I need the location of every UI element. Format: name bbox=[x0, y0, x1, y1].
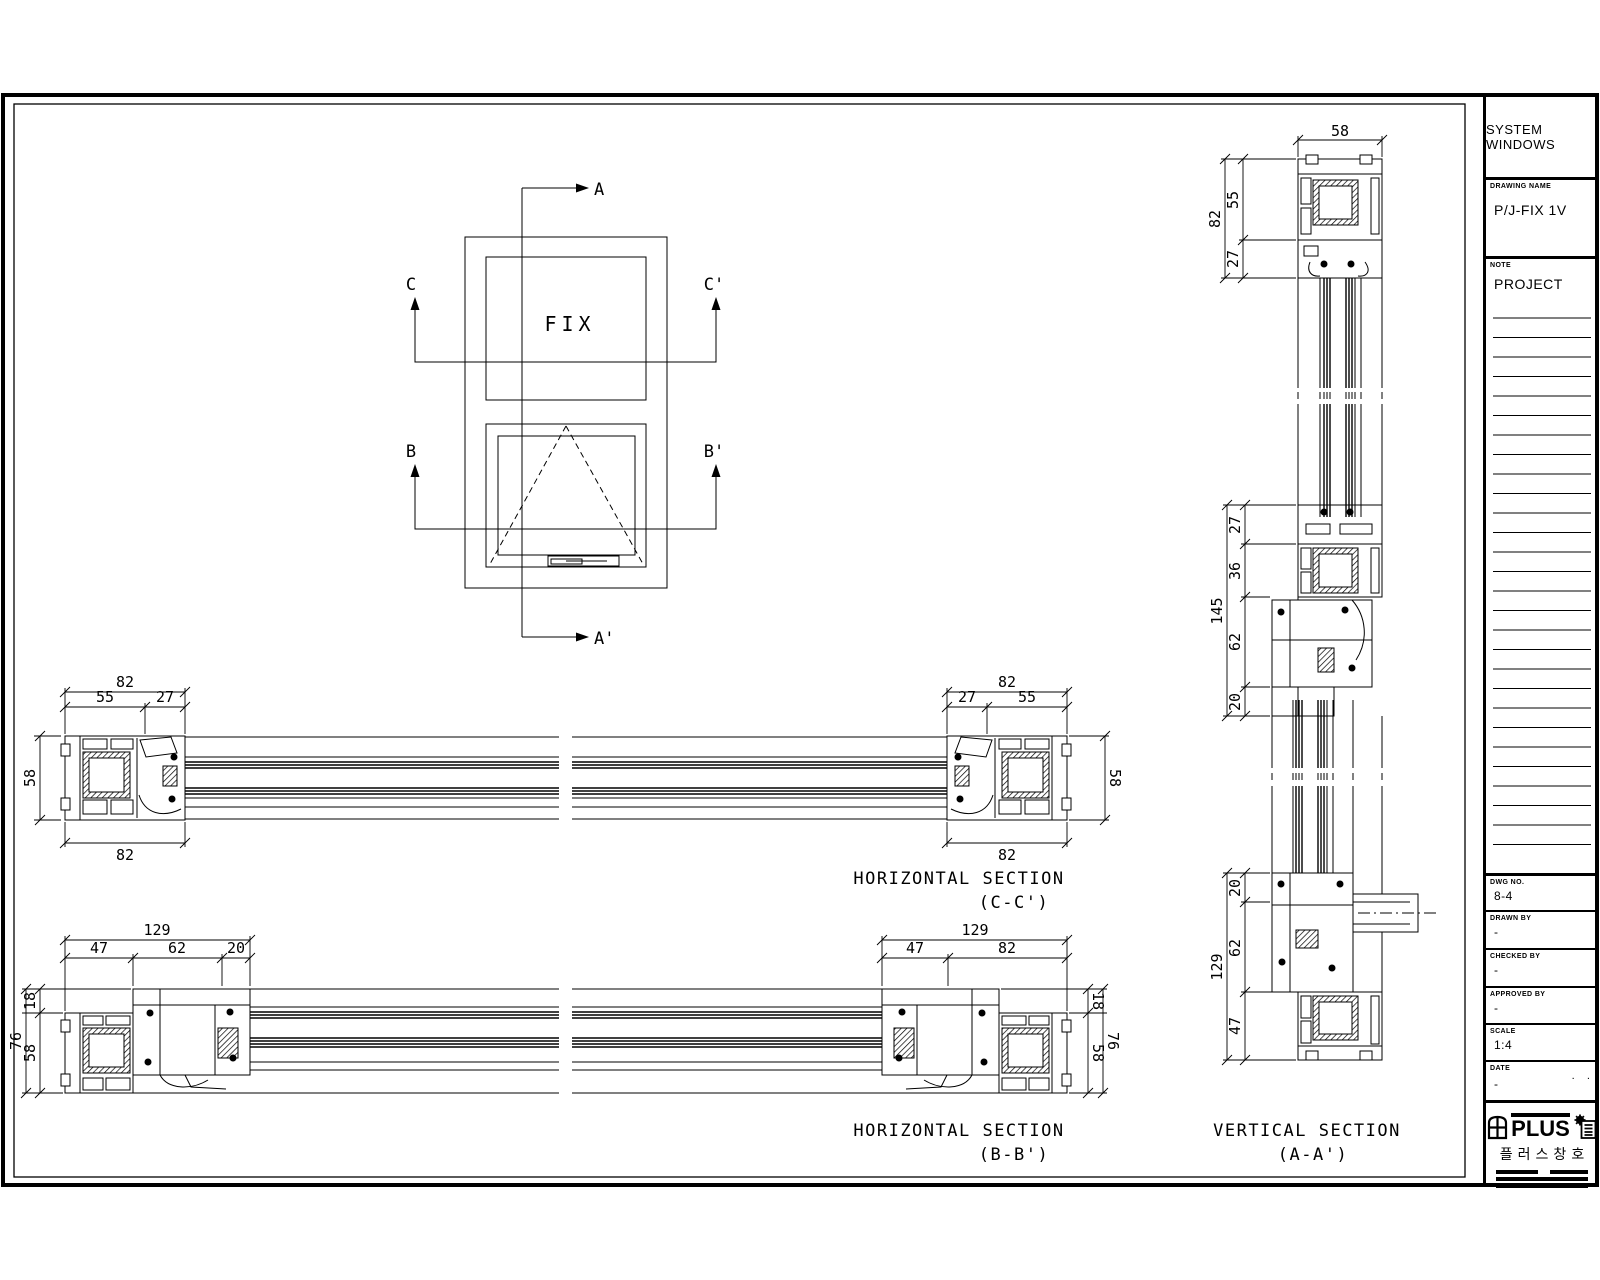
drawing-name-cell: DRAWING NAME P/J-FIX 1V bbox=[1486, 177, 1598, 256]
scale-label: SCALE bbox=[1486, 1025, 1598, 1035]
document-logo-icon bbox=[1573, 1114, 1597, 1140]
cc-left-frame-profile bbox=[61, 736, 185, 820]
dim: 27 bbox=[156, 688, 174, 706]
cc-right-frame-profile bbox=[947, 736, 1071, 820]
window-logo-icon bbox=[1487, 1114, 1508, 1140]
dim: 129 bbox=[1208, 953, 1226, 980]
dim: 82 bbox=[998, 673, 1016, 691]
dim: 129 bbox=[143, 921, 170, 939]
cc-section-title: HORIZONTAL SECTION bbox=[853, 869, 1064, 889]
dim: 76 bbox=[1104, 1032, 1122, 1050]
marker-a-prime: A' bbox=[594, 629, 614, 649]
titleblock-header: SYSTEM WINDOWS bbox=[1486, 97, 1598, 177]
dim: 82 bbox=[998, 939, 1016, 957]
bb-left-vent-sash-profile bbox=[133, 989, 250, 1089]
dim: 55 bbox=[1018, 688, 1036, 706]
marker-c-prime: C' bbox=[704, 275, 724, 295]
logo-bars bbox=[1496, 1170, 1588, 1188]
dim: 82 bbox=[998, 846, 1016, 864]
dim: 47 bbox=[90, 939, 108, 957]
system-windows-title: SYSTEM WINDOWS bbox=[1486, 122, 1598, 152]
dim: 20 bbox=[1226, 879, 1244, 897]
date-cell: DATE . . - bbox=[1486, 1060, 1598, 1100]
bb-left-jamb-profile bbox=[61, 1013, 133, 1093]
aa-sill-frame-profile bbox=[1298, 992, 1382, 1060]
note-label: NOTE bbox=[1486, 259, 1598, 269]
note-cell: NOTE PROJECT bbox=[1486, 256, 1598, 873]
drawing-name-value: P/J-FIX 1V bbox=[1486, 202, 1598, 218]
dim: 27 bbox=[958, 688, 976, 706]
aa-head-frame-profile bbox=[1298, 155, 1382, 278]
dim: 18 bbox=[1089, 992, 1107, 1010]
logo-korean-text: 플러스창호 bbox=[1486, 1144, 1598, 1164]
plus-logo-text: PLUS bbox=[1511, 1118, 1570, 1140]
scale-cell: SCALE 1:4 bbox=[1486, 1023, 1598, 1060]
dwg-no-label: DWG NO. bbox=[1486, 876, 1598, 886]
drawn-by-cell: DRAWN BY - bbox=[1486, 910, 1598, 948]
fix-panel-label: FIX bbox=[544, 312, 595, 336]
note-value: PROJECT bbox=[1486, 276, 1598, 292]
drawn-by-value: - bbox=[1486, 925, 1598, 939]
dim: 82 bbox=[116, 846, 134, 864]
drawing-name-label: DRAWING NAME bbox=[1486, 180, 1598, 190]
dim: 20 bbox=[227, 939, 245, 957]
bb-right-jamb-profile bbox=[999, 1013, 1071, 1093]
aa-transom-profile bbox=[1272, 505, 1382, 716]
dim: 82 bbox=[1206, 210, 1224, 228]
bb-section-subtitle: (B-B') bbox=[979, 1145, 1049, 1165]
window-handle bbox=[548, 556, 619, 566]
dim: 82 bbox=[116, 673, 134, 691]
dim: 129 bbox=[961, 921, 988, 939]
aa-section-subtitle: (A-A') bbox=[1278, 1145, 1348, 1165]
dim: 47 bbox=[906, 939, 924, 957]
bb-right-vent-sash-profile bbox=[882, 989, 999, 1089]
approved-by-value: - bbox=[1486, 1001, 1598, 1015]
section-cc-drawing: 82 55 27 58 82 82 27 55 58 82 bbox=[21, 673, 1124, 864]
approved-by-cell: APPROVED BY - bbox=[1486, 986, 1598, 1023]
dim: 58 bbox=[1106, 769, 1124, 787]
dim: 145 bbox=[1208, 597, 1226, 624]
dim: 18 bbox=[21, 992, 39, 1010]
dwg-no-value: 8-4 bbox=[1486, 889, 1598, 903]
tilt-symbol bbox=[490, 426, 643, 564]
plus-logo: PLUS bbox=[1511, 1113, 1570, 1140]
date-dots: . . bbox=[1572, 1070, 1590, 1082]
scale-value: 1:4 bbox=[1486, 1038, 1598, 1052]
dim: 55 bbox=[1224, 191, 1242, 209]
dim: 62 bbox=[1226, 939, 1244, 957]
drawing-sheet: A A' C C' B B' FIX bbox=[0, 0, 1600, 1280]
dim: 27 bbox=[1226, 516, 1244, 534]
dwg-no-cell: DWG NO. 8-4 bbox=[1486, 873, 1598, 910]
dim: 20 bbox=[1226, 693, 1244, 711]
dim: 76 bbox=[7, 1032, 25, 1050]
cc-section-subtitle: (C-C') bbox=[979, 893, 1049, 913]
section-aa-drawing: 58 82 55 27 145 27 36 62 20 129 20 62 47 bbox=[1206, 122, 1440, 1065]
dim: 36 bbox=[1226, 562, 1244, 580]
vent-handle bbox=[1353, 894, 1440, 932]
dim: 27 bbox=[1224, 250, 1242, 268]
approved-by-label: APPROVED BY bbox=[1486, 988, 1598, 998]
dim: 58 bbox=[21, 769, 39, 787]
dim: 58 bbox=[1331, 122, 1349, 140]
marker-b-prime: B' bbox=[704, 442, 724, 462]
elevation-view: A A' C C' B B' FIX bbox=[406, 180, 724, 649]
logo-cell: PLUS 플러스창호 bbox=[1486, 1100, 1598, 1183]
bb-section-title: HORIZONTAL SECTION bbox=[853, 1121, 1064, 1141]
dim: 47 bbox=[1226, 1017, 1244, 1035]
marker-a: A bbox=[594, 180, 604, 200]
checked-by-cell: CHECKED BY - bbox=[1486, 948, 1598, 986]
dim: 62 bbox=[1226, 633, 1244, 651]
checked-by-label: CHECKED BY bbox=[1486, 950, 1598, 960]
section-bb-drawing: 129 47 62 20 18 58 76 129 47 82 18 58 76 bbox=[7, 921, 1122, 1098]
section-line-b bbox=[411, 464, 721, 529]
marker-c: C bbox=[406, 275, 416, 295]
aa-section-title: VERTICAL SECTION bbox=[1213, 1121, 1401, 1141]
cad-drawing: A A' C C' B B' FIX bbox=[0, 0, 1600, 1280]
drawn-by-label: DRAWN BY bbox=[1486, 912, 1598, 922]
title-block: SYSTEM WINDOWS DRAWING NAME P/J-FIX 1V N… bbox=[1483, 97, 1598, 1183]
aa-bottom-rail-profile bbox=[1272, 873, 1440, 992]
note-ruled-lines bbox=[1493, 299, 1591, 847]
section-line-a bbox=[522, 184, 589, 642]
dim: 62 bbox=[168, 939, 186, 957]
checked-by-value: - bbox=[1486, 963, 1598, 977]
dim: 55 bbox=[96, 688, 114, 706]
marker-b: B bbox=[406, 442, 416, 462]
